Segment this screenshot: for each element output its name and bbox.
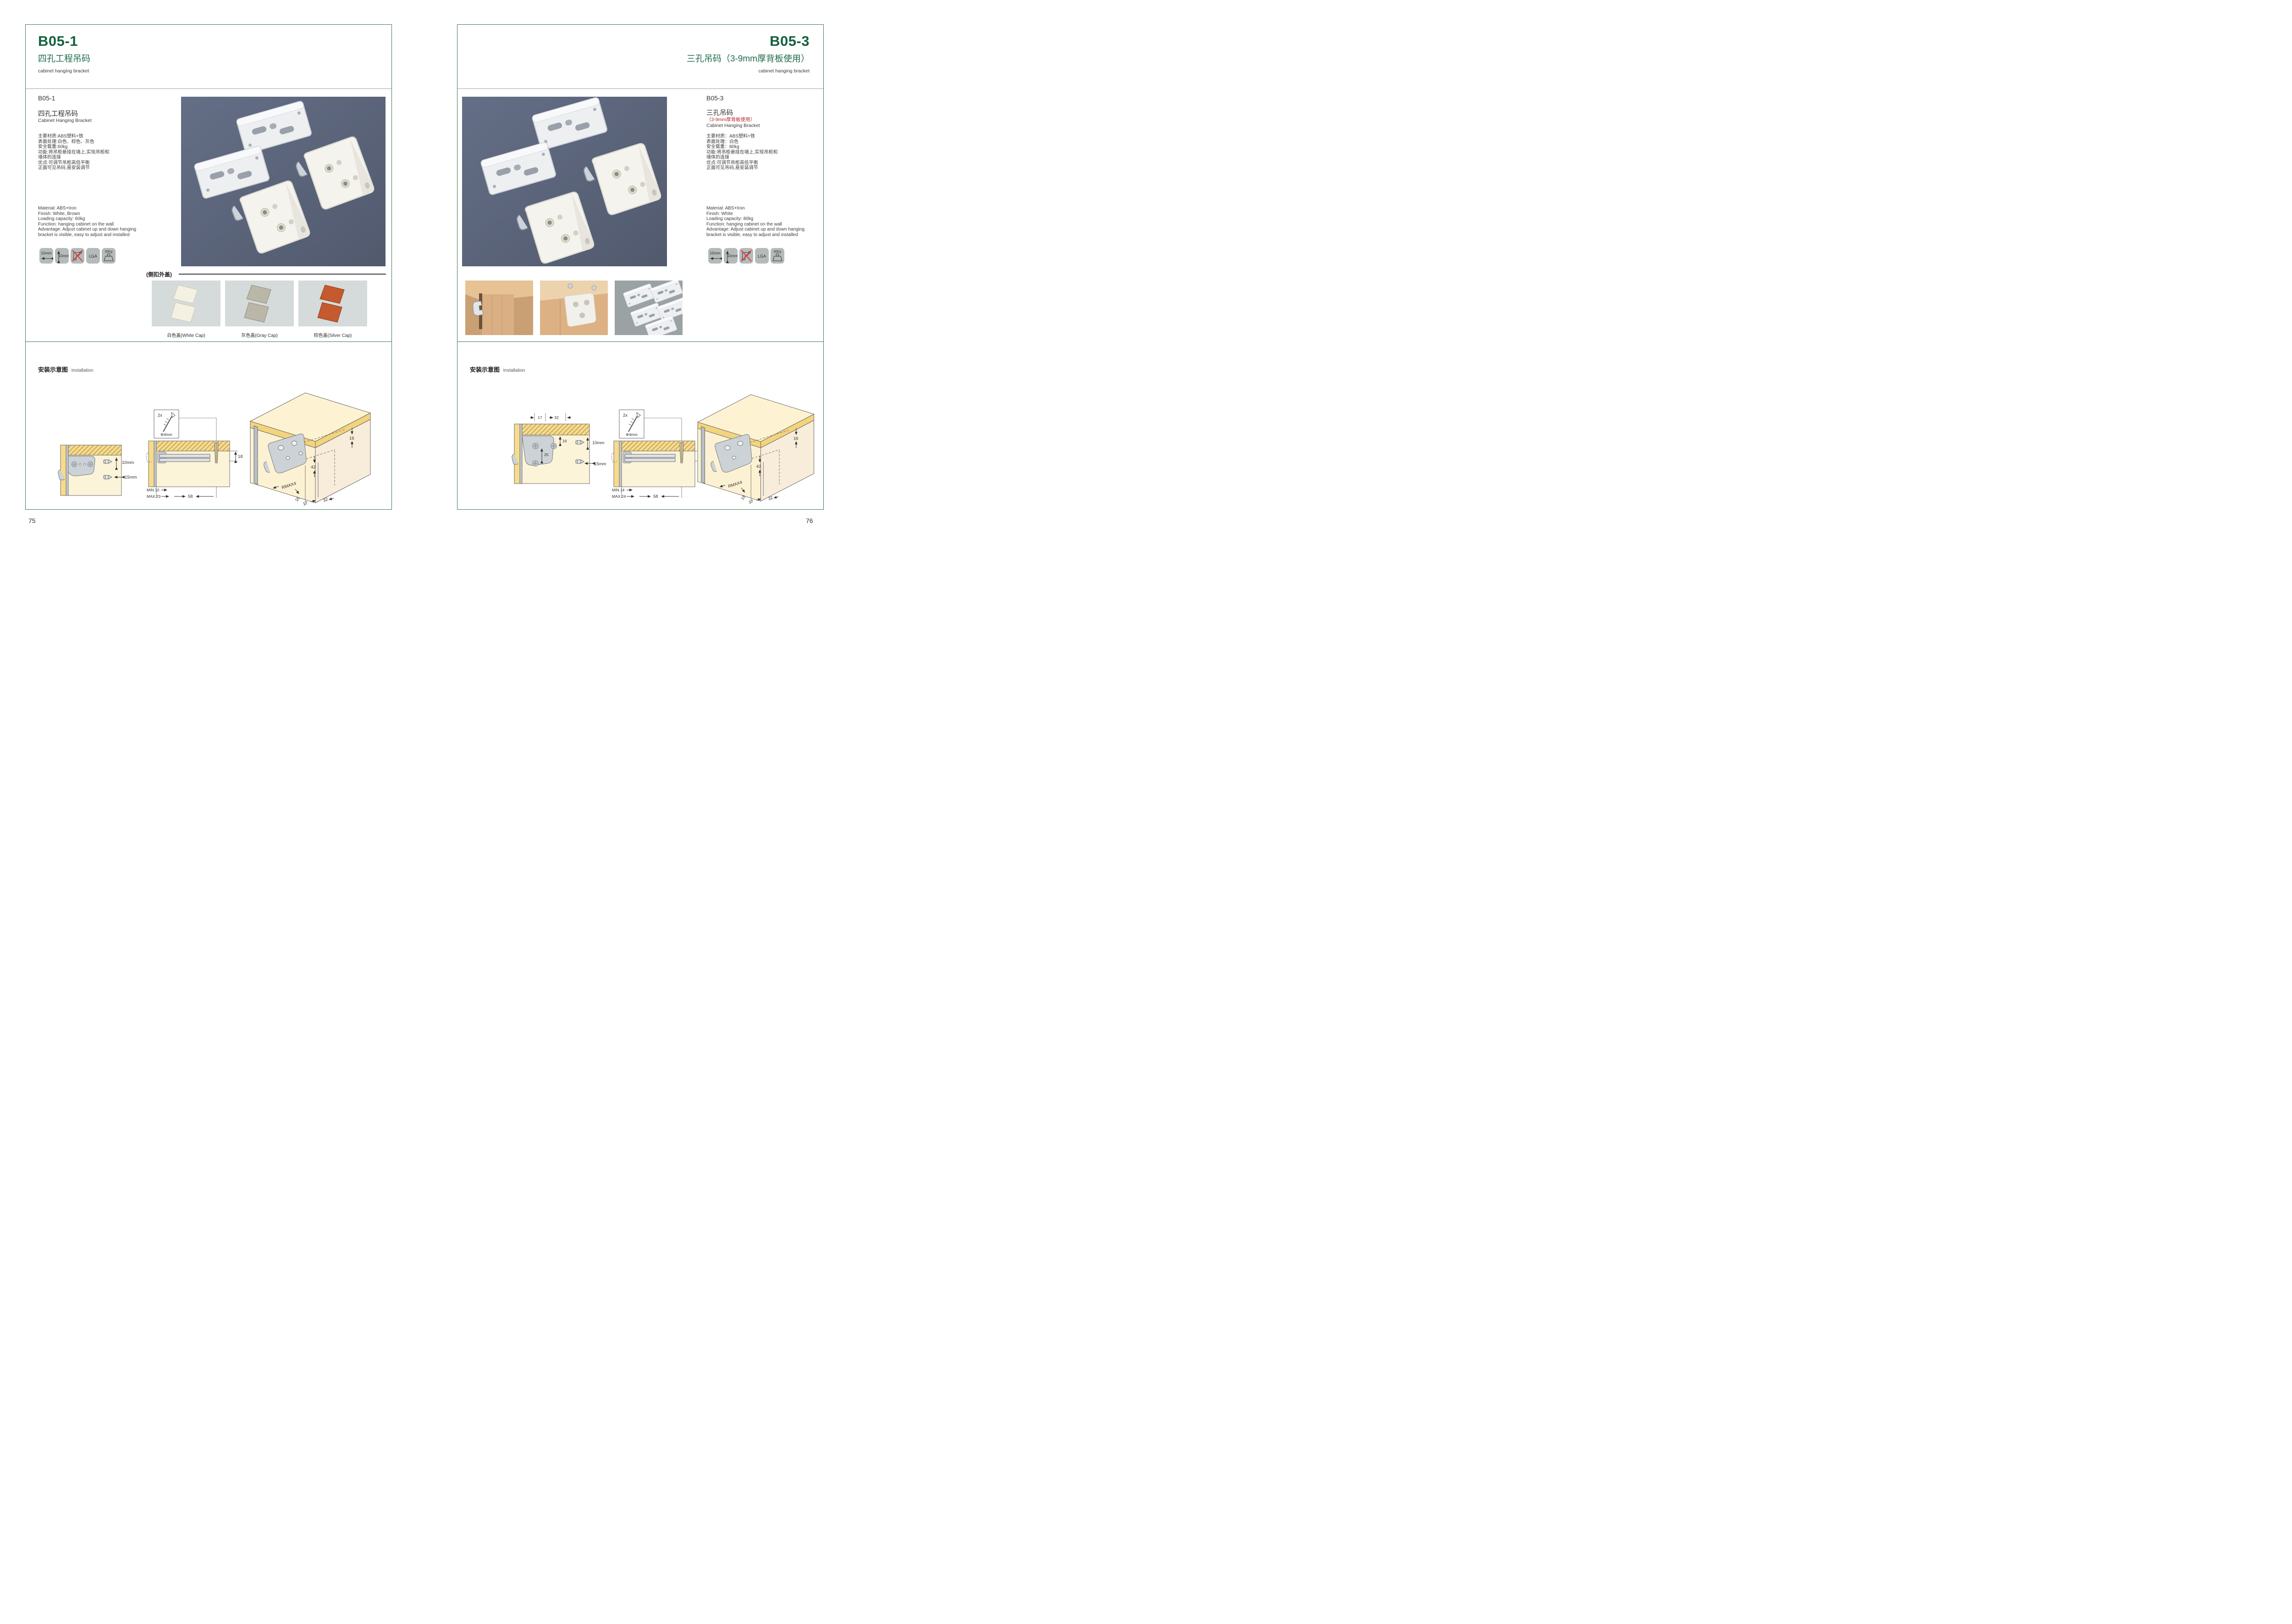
page-subtitle-cn: 三孔吊码（3-9mm厚背板使用） (457, 52, 810, 64)
icon-label: 10mm (58, 253, 69, 258)
caps-rule (179, 274, 386, 275)
dim-label: MIN.10 (147, 488, 160, 492)
detail-photo-hook-clip (465, 281, 533, 335)
spec-line: 墙体的连接 (38, 155, 110, 160)
spec-line: Function: hanging cabinet on the wall (706, 222, 804, 227)
spec-line: 正面可见吊码,易安装调节 (38, 165, 110, 171)
dim-label: MAX.24 (612, 494, 626, 499)
detail-photo-plates-set (615, 281, 683, 335)
section-divider (457, 341, 823, 342)
spec-line: Material: ABS+Iron (706, 206, 804, 211)
feature-icons: 15mm 10mm LGA (39, 248, 116, 264)
dim-label: 32 (554, 415, 559, 420)
page-title: B05-3 (457, 34, 810, 49)
dim-label: 25 (544, 452, 549, 457)
spec-line: 主要材质:ABS塑料+铁 (38, 134, 110, 139)
spec-line: Finish: White (706, 211, 804, 217)
page-subtitle-en: cabinet hanging bracket (38, 68, 391, 74)
spec-line: bracket is visible, easy to adjust and i… (38, 232, 136, 238)
installation-heading: 安装示意图 Installation (470, 365, 525, 374)
dim-label: 2x (623, 413, 628, 418)
spec-line: Loading capacity: 60kg (38, 216, 136, 222)
page-title: B05-1 (38, 34, 391, 49)
spec-line: Material: ABS+Iron (38, 206, 136, 211)
installation-heading-cn: 安装示意图 (38, 366, 68, 373)
spec-line: Function: hanging cabinet on the wall (38, 222, 136, 227)
specs-cn: 主要材质：ABS塑料+铁 表面处理：白色 安全载重：80kg 功能:将吊柜悬挂在… (706, 134, 778, 171)
dim-label: 42 (756, 464, 761, 469)
page-header: B05-1 四孔工程吊码 cabinet hanging bracket (26, 25, 391, 89)
load-60kg-icon: 60Kg (102, 248, 116, 264)
installation-diagram-screw-section: 2x Φ4mm 18 MIN.10 MAX.23 (146, 409, 244, 501)
dim-label: 15mm (125, 475, 137, 480)
spec-line: bracket is visible, easy to adjust and i… (706, 232, 804, 238)
product-code: B05-1 (38, 94, 55, 102)
installation-diagram-side-section: 10mm 15mm (58, 444, 145, 501)
main-product-photo (462, 97, 667, 266)
installation-diagram-3d: 16 42 RMAX4 16 17 32 (237, 389, 379, 508)
spec-line: Advantage: Adjust cabinet up and down ha… (706, 227, 804, 232)
spec-line: Advantage: Adjust cabinet up and down ha… (38, 227, 136, 232)
no-drill-icon (739, 248, 753, 264)
main-product-photo (181, 97, 386, 266)
spec-line: 功能:将吊柜悬挂在墙上,实现吊柜和 (38, 150, 110, 155)
icon-label: 15mm (710, 251, 721, 255)
icon-label: 80Kg (774, 250, 781, 253)
spec-line: Finish: White, Brown (38, 211, 136, 217)
load-80kg-icon: 80Kg (771, 248, 784, 264)
installation-heading-en: Installation (72, 368, 94, 373)
spec-line: 墙体的连接 (706, 155, 778, 160)
dim-label: MAX.23 (147, 494, 161, 499)
spec-line: 安全载重:60kg (38, 144, 110, 150)
product-name-en: Cabinet Hanging Bracket (38, 118, 92, 123)
cap-figure-white: 白色盖(White Cap) (152, 281, 220, 338)
dim-label: 32 (767, 495, 773, 501)
cap-caption: 白色盖(White Cap) (152, 331, 220, 338)
width-15mm-icon: 15mm (708, 248, 722, 264)
section-divider (26, 341, 391, 342)
spec-line: 安全载重：80kg (706, 144, 778, 150)
dim-label: 16 (349, 436, 354, 441)
lga-icon: LGA (755, 248, 769, 264)
installation-heading-cn: 安装示意图 (470, 366, 500, 373)
height-10mm-icon: 10mm (724, 248, 738, 264)
catalog-spread: B05-1 四孔工程吊码 cabinet hanging bracket B05… (0, 0, 830, 541)
installation-heading: 安装示意图 Installation (38, 365, 93, 374)
lga-icon: LGA (86, 248, 100, 264)
dim-label: 17 (748, 499, 754, 505)
product-name-en: Cabinet Hanging Bracket (706, 123, 760, 128)
installation-heading-en: Installation (503, 368, 525, 373)
spec-line: 表面处理：白色 (706, 139, 778, 145)
spec-line: 优点:可调节吊柜高低平衡 (706, 160, 778, 166)
dim-label: 10mm (592, 440, 604, 446)
height-10mm-icon: 10mm (55, 248, 69, 264)
page-subtitle-cn: 四孔工程吊码 (38, 52, 391, 64)
detail-photo-corner-bracket (540, 281, 608, 335)
caps-section-label: (侧扣外盖) (146, 270, 172, 278)
specs-en: Material: ABS+Iron Finish: White, Brown … (38, 206, 136, 237)
page-b05-3: B05-3 三孔吊码（3-9mm厚背板使用） cabinet hanging b… (457, 24, 824, 510)
page-number-left: 75 (28, 517, 36, 524)
no-drill-icon (71, 248, 84, 264)
spec-line: Loading capacity: 80kg (706, 216, 804, 222)
product-code: B05-3 (706, 94, 723, 102)
dim-label: 58 (653, 494, 658, 499)
dim-label: 17 (302, 501, 308, 507)
spec-line: 表面处理:白色、棕色、灰色 (38, 139, 110, 145)
icon-label: LGA (758, 254, 766, 259)
dim-label: Φ4mm (160, 432, 172, 437)
icon-label: 60Kg (105, 250, 112, 253)
dim-label: 10mm (122, 460, 134, 465)
spec-line: 正面可见吊码,易安装调节 (706, 165, 778, 171)
dim-label: Φ4mm (626, 432, 638, 437)
dim-label: 16 (562, 439, 567, 443)
page-header: B05-3 三孔吊码（3-9mm厚背板使用） cabinet hanging b… (457, 25, 823, 89)
installation-diagram-3d: 16 42 RMAX4 18 17 32 (684, 389, 822, 508)
dim-label: 32 (322, 497, 328, 503)
icon-label: 15mm (41, 251, 52, 255)
feature-icons: 15mm 10mm LGA (708, 248, 784, 264)
spec-line: 优点:可调节吊柜高低平衡 (38, 160, 110, 166)
spec-line: 主要材质：ABS塑料+铁 (706, 134, 778, 139)
cap-caption: 棕色盖(Silver Cap) (298, 331, 367, 338)
dim-label: 16 (793, 436, 798, 441)
specs-en: Material: ABS+Iron Finish: White Loading… (706, 206, 804, 237)
product-name-cn: 四孔工程吊码 (38, 109, 78, 118)
spec-line: 功能:将吊柜悬挂在墙上,实现吊柜和 (706, 150, 778, 155)
page-subtitle-en: cabinet hanging bracket (457, 68, 810, 74)
dim-label: 58 (188, 494, 193, 499)
icon-label: 10mm (727, 253, 738, 258)
specs-cn: 主要材质:ABS塑料+铁 表面处理:白色、棕色、灰色 安全载重:60kg 功能:… (38, 134, 110, 171)
cap-figure-gray: 灰色盖(Gray Cap) (225, 281, 294, 338)
dim-label: MIN.14 (612, 488, 625, 492)
icon-label: LGA (89, 254, 97, 259)
cap-figure-brown: 棕色盖(Silver Cap) (298, 281, 367, 338)
product-name-note-red: （3-9mm厚背板使用） (706, 116, 755, 123)
cap-caption: 灰色盖(Gray Cap) (225, 331, 294, 338)
dim-label: 17 (538, 415, 542, 420)
page-b05-1: B05-1 四孔工程吊码 cabinet hanging bracket B05… (25, 24, 392, 510)
width-15mm-icon: 15mm (39, 248, 53, 264)
dim-label: 2x (158, 413, 162, 418)
installation-diagram-side-section: 17 32 16 25 10mm 15mm (512, 412, 610, 501)
page-number-right: 76 (806, 517, 813, 524)
dim-label: 42 (311, 465, 316, 470)
dim-label: 15mm (594, 462, 606, 467)
